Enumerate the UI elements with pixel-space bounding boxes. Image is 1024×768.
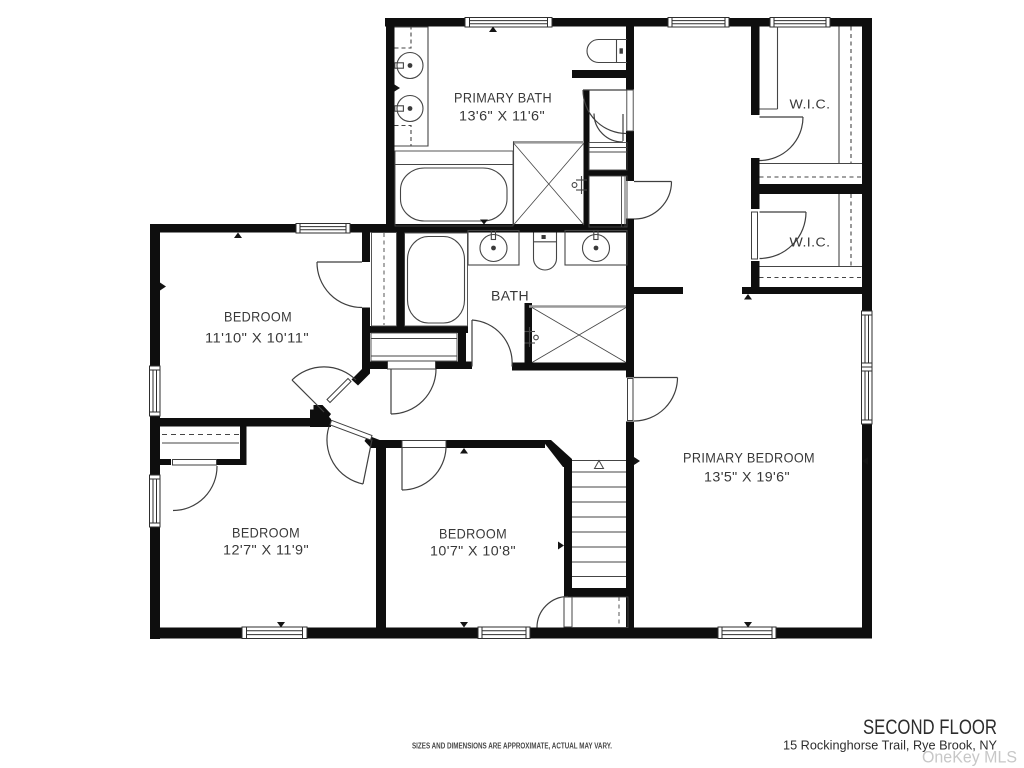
- svg-text:13'6" X 11'6": 13'6" X 11'6": [459, 109, 545, 124]
- svg-text:BEDROOM: BEDROOM: [232, 526, 300, 541]
- svg-text:PRIMARY BEDROOM: PRIMARY BEDROOM: [683, 451, 815, 466]
- svg-text:12'7" X 11'9": 12'7" X 11'9": [223, 543, 309, 558]
- svg-text:SIZES AND DIMENSIONS ARE APPRO: SIZES AND DIMENSIONS ARE APPROXIMATE, AC…: [412, 742, 612, 751]
- svg-text:13'5" X 19'6": 13'5" X 19'6": [704, 470, 790, 485]
- svg-text:W.I.C.: W.I.C.: [790, 97, 831, 112]
- svg-text:BEDROOM: BEDROOM: [224, 310, 292, 325]
- svg-text:OneKey MLS: OneKey MLS: [922, 748, 1017, 767]
- svg-text:SECOND FLOOR: SECOND FLOOR: [863, 716, 997, 739]
- svg-text:W.I.C.: W.I.C.: [790, 235, 831, 250]
- svg-text:BEDROOM: BEDROOM: [439, 527, 507, 542]
- svg-text:PRIMARY BATH: PRIMARY BATH: [454, 91, 552, 106]
- svg-text:BATH: BATH: [491, 289, 529, 304]
- svg-text:10'7" X 10'8": 10'7" X 10'8": [430, 544, 516, 559]
- svg-text:11'10" X 10'11": 11'10" X 10'11": [205, 331, 309, 346]
